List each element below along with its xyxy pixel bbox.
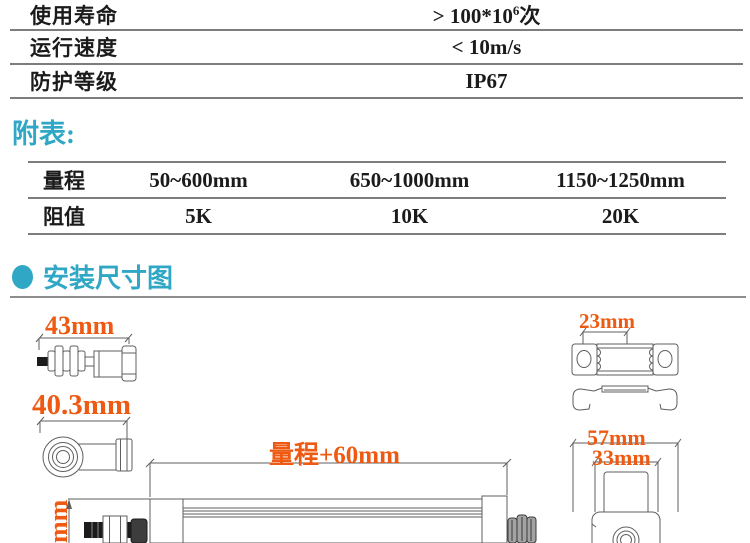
dimension-label-43mm: 43mm xyxy=(45,311,114,341)
dimension-label-23mm: 23mm xyxy=(579,309,635,334)
mounting-clamp-top-view xyxy=(572,344,678,375)
sensor-end-view-drawing xyxy=(592,472,660,543)
cylinder-body-drawing xyxy=(66,496,536,543)
dimension-label-33mm: 33mm xyxy=(592,445,651,471)
product-spec-page: 使用寿命 > 100*106次 运行速度 < 10m/s 防护等级 IP67 附… xyxy=(0,0,750,543)
dimension-label-body-height: mm xyxy=(44,463,70,543)
rod-tip-drawing xyxy=(37,346,136,381)
mounting-clamp-side-view xyxy=(573,386,677,410)
dimension-label-stroke: 量程+60mm xyxy=(269,435,400,471)
dimension-label-40-3mm: 40.3mm xyxy=(32,389,131,422)
